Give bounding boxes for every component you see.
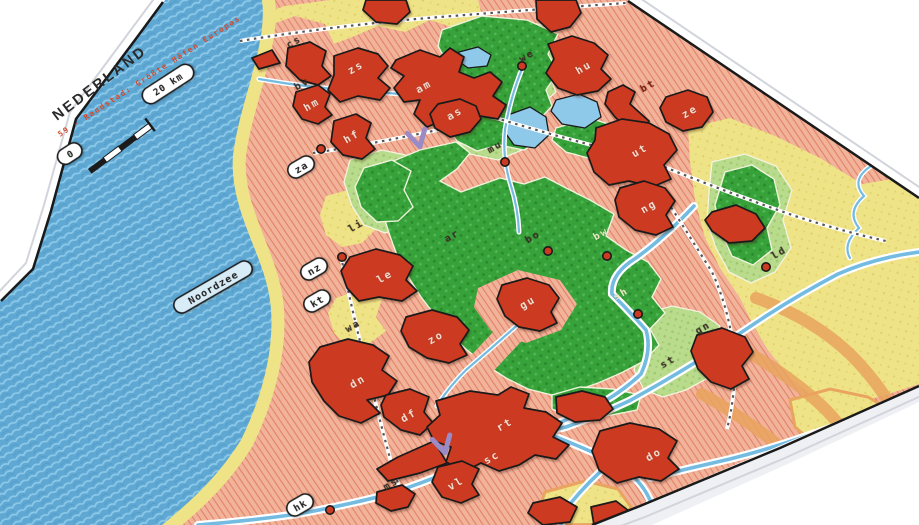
city-dot [544,247,552,255]
city-dot [603,252,611,260]
city-dot [762,263,770,271]
city-dot [634,310,642,318]
city-dot [326,506,334,514]
map-canvas: Noordzeezanzkthkcsbvliwamsmuwearboldstgn… [0,0,919,525]
city-area-zaanstad [328,48,390,102]
city-dot [338,253,346,261]
tactile-map-photo: Noordzeezanzkthkcsbvliwamsmuwearboldstgn… [0,0,919,525]
city-dot [501,158,509,166]
city-dot [317,145,325,153]
